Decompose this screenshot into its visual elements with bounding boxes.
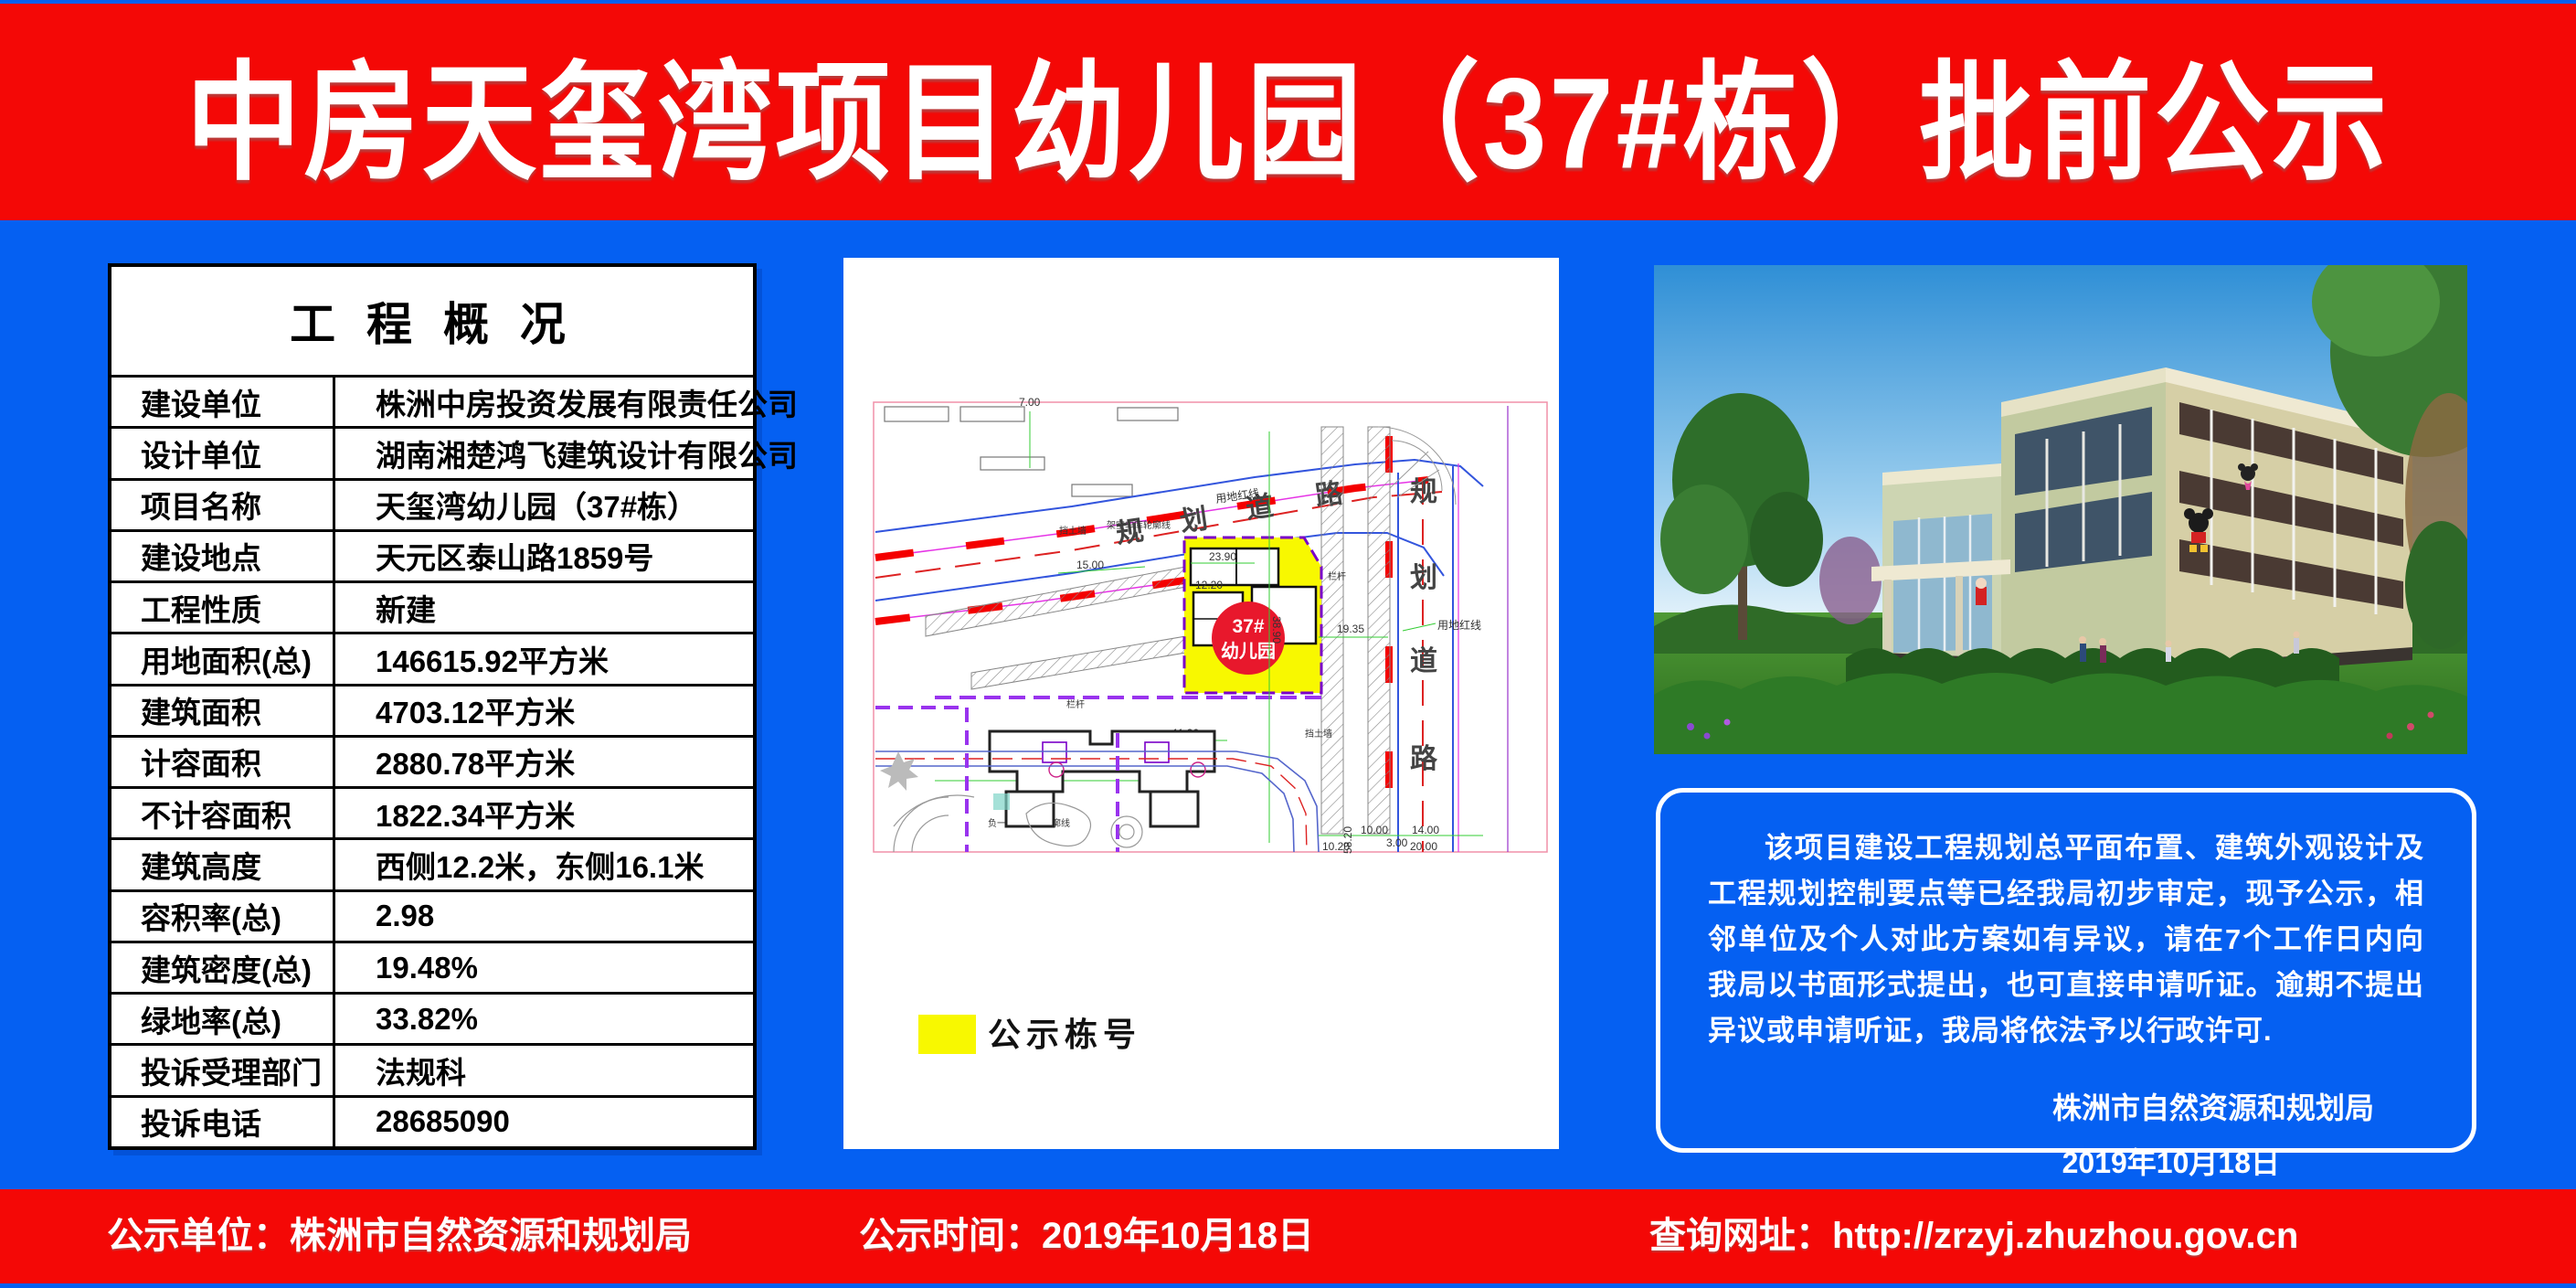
svg-text:栏杆: 栏杆: [1066, 698, 1085, 710]
svg-text:14.00: 14.00: [1412, 824, 1439, 836]
notice-date: 2019年10月18日: [1708, 1140, 2424, 1182]
row-label: 投诉电话: [111, 1098, 335, 1146]
svg-text:用地红线: 用地红线: [1437, 618, 1481, 632]
legend-label: 公示栋号: [988, 1016, 1141, 1053]
row-value: 株洲中房投资发展有限责任公司: [335, 378, 798, 426]
table-row: 工程性质 新建: [111, 580, 753, 632]
row-value: 4703.12平方米: [335, 687, 753, 735]
row-label: 建筑密度(总): [111, 943, 335, 992]
residential-buildings: [990, 731, 1214, 826]
table-row: 项目名称 天玺湾幼儿园（37#栋）: [111, 478, 753, 529]
row-label: 建筑面积: [111, 687, 335, 735]
table-row: 不计容面积 1822.34平方米: [111, 786, 753, 837]
svg-text:20.00: 20.00: [1410, 840, 1437, 853]
table-row: 建设单位 株洲中房投资发展有限责任公司: [111, 375, 753, 426]
planned-road-top: [875, 460, 1483, 622]
legend: 公示栋号: [918, 1015, 1141, 1054]
row-label: 容积率(总): [111, 892, 335, 941]
row-value: 2880.78平方米: [335, 738, 753, 786]
internal-road: [875, 751, 1319, 852]
basement-outline: [875, 708, 1118, 852]
row-label: 用地面积(总): [111, 634, 335, 683]
row-label: 不计容面积: [111, 789, 335, 837]
row-value: 天元区泰山路1859号: [335, 532, 753, 580]
svg-text:栏杆: 栏杆: [1328, 570, 1346, 582]
table-row: 投诉受理部门 法规科: [111, 1043, 753, 1094]
table-row: 用地面积(总) 146615.92平方米: [111, 632, 753, 683]
svg-text:规: 规: [1410, 477, 1437, 507]
wall-figure: [1976, 587, 1987, 605]
footer-unit: 公示单位：株洲市自然资源和规划局: [107, 1206, 692, 1259]
page-title: 中房天玺湾项目幼儿园（37#栋）批前公示: [186, 19, 2390, 206]
footer-bar: 公示单位：株洲市自然资源和规划局 公示时间：2019年10月18日 查询网址：h…: [0, 1189, 2576, 1283]
row-label: 工程性质: [111, 583, 335, 632]
row-value: 28685090: [335, 1098, 753, 1146]
legend-swatch: [918, 1015, 976, 1054]
svg-text:10.00: 10.00: [1361, 824, 1388, 836]
row-value: 33.82%: [335, 995, 753, 1043]
table-row: 设计单位 湖南湘楚鸿飞建筑设计有限公司: [111, 426, 753, 477]
svg-text:15.00: 15.00: [1076, 559, 1104, 571]
table-row: 容积率(总) 2.98: [111, 889, 753, 941]
table-row: 建筑密度(总) 19.48%: [111, 941, 753, 992]
row-label: 项目名称: [111, 481, 335, 529]
row-value: 法规科: [335, 1046, 753, 1094]
svg-text:挡土墙: 挡土墙: [1059, 525, 1087, 537]
svg-text:58.20: 58.20: [1341, 826, 1354, 854]
site-plan-panel: 规 划 道 路 用地红线 规: [843, 258, 1559, 1149]
svg-text:12.20: 12.20: [1195, 579, 1223, 591]
svg-text:7.00: 7.00: [1019, 396, 1041, 409]
row-value: 2.98: [335, 892, 753, 941]
site-plan-drawing: 规 划 道 路 用地红线 规: [843, 258, 1559, 1149]
row-label: 计容面积: [111, 738, 335, 786]
notice-board: 中房天玺湾项目幼儿园（37#栋）批前公示 工 程 概 况 建设单位 株洲中房投资…: [0, 0, 2576, 1288]
svg-text:38.90: 38.90: [1270, 616, 1283, 644]
svg-text:架空车库轮廓线: 架空车库轮廓线: [1107, 519, 1171, 531]
footer-site-url: 查询网址：http://zrzyj.zhuzhou.gov.cn: [1649, 1206, 2298, 1259]
row-value: 19.48%: [335, 943, 753, 992]
table-title: 工 程 概 况: [111, 267, 753, 375]
table-row: 建设地点 天元区泰山路1859号: [111, 529, 753, 580]
row-value: 1822.34平方米: [335, 789, 753, 837]
notice-body: 该项目建设工程规划总平面布置、建筑外观设计及工程规划控制要点等已经我局初步审定，…: [1708, 825, 2424, 1054]
row-label: 投诉受理部门: [111, 1046, 335, 1094]
notice-box: 该项目建设工程规划总平面布置、建筑外观设计及工程规划控制要点等已经我局初步审定，…: [1656, 788, 2476, 1153]
svg-text:23.90: 23.90: [1209, 550, 1236, 563]
table-row: 绿地率(总) 33.82%: [111, 992, 753, 1043]
footer-time: 公示时间：2019年10月18日: [859, 1206, 1314, 1259]
row-value: 湖南湘楚鸿飞建筑设计有限公司: [335, 429, 798, 477]
table-row: 投诉电话 28685090: [111, 1095, 753, 1146]
parking-strip: [1368, 427, 1390, 834]
red-line-label-right: 用地红线: [1403, 618, 1481, 632]
row-value: 天玺湾幼儿园（37#栋）: [335, 481, 753, 529]
star-shape: [880, 751, 918, 791]
row-value: 西侧12.2米，东侧16.1米: [335, 840, 753, 889]
project-overview-table: 工 程 概 况 建设单位 株洲中房投资发展有限责任公司 设计单位 湖南湘楚鸿飞建…: [108, 263, 757, 1150]
svg-text:道: 道: [1410, 646, 1437, 676]
row-label: 建设地点: [111, 532, 335, 580]
svg-text:3.00: 3.00: [1386, 836, 1408, 849]
row-value: 新建: [335, 583, 753, 632]
table-row: 建筑面积 4703.12平方米: [111, 684, 753, 735]
row-label: 建筑高度: [111, 840, 335, 889]
svg-text:19.35: 19.35: [1337, 623, 1364, 635]
row-label: 建设单位: [111, 378, 335, 426]
row-value: 146615.92平方米: [335, 634, 753, 683]
svg-text:挡土墙: 挡土墙: [1305, 728, 1332, 740]
building-rendering-photo: [1654, 265, 2467, 754]
pool-marker: [993, 793, 1010, 810]
svg-text:划: 划: [1178, 504, 1209, 538]
adjacent-buildings-top: [885, 407, 1178, 496]
header-banner: 中房天玺湾项目幼儿园（37#栋）批前公示: [0, 4, 2576, 220]
row-label: 绿地率(总): [111, 995, 335, 1043]
table-row: 计容面积 2880.78平方米: [111, 735, 753, 786]
row-label: 设计单位: [111, 429, 335, 477]
svg-text:37#: 37#: [1232, 616, 1264, 637]
building-rendering: [1654, 265, 2467, 754]
table-row: 建筑高度 西侧12.2米，东侧16.1米: [111, 837, 753, 889]
svg-text:划: 划: [1410, 563, 1437, 593]
notice-signature: 株洲市自然资源和规划局: [1708, 1085, 2424, 1127]
svg-text:路: 路: [1410, 744, 1438, 774]
svg-text:幼儿园: 幼儿园: [1221, 640, 1276, 662]
